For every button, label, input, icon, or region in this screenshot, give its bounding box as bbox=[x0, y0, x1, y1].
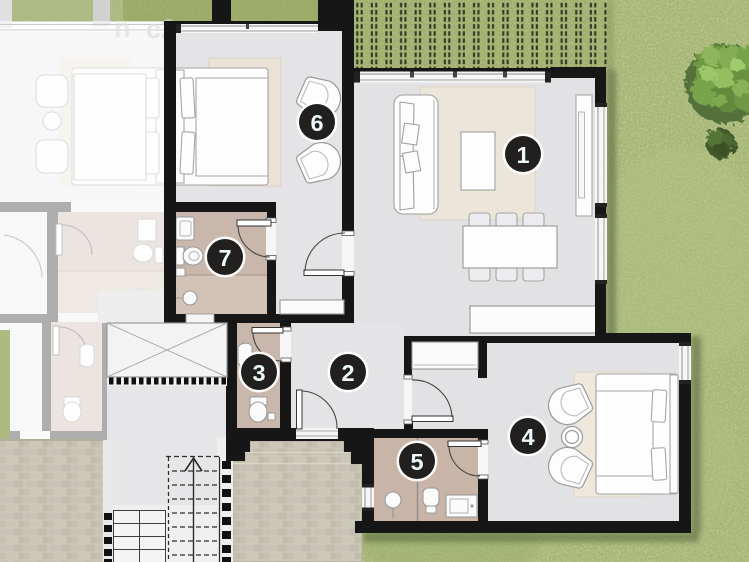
svg-text:n: n bbox=[114, 13, 131, 43]
svg-text:1: 1 bbox=[516, 142, 529, 168]
svg-text:6: 6 bbox=[310, 110, 323, 136]
svg-text:7: 7 bbox=[218, 245, 231, 271]
svg-text:5: 5 bbox=[410, 449, 423, 475]
svg-text:2: 2 bbox=[341, 360, 354, 386]
svg-text:3: 3 bbox=[252, 360, 265, 386]
svg-text:4: 4 bbox=[521, 424, 534, 450]
